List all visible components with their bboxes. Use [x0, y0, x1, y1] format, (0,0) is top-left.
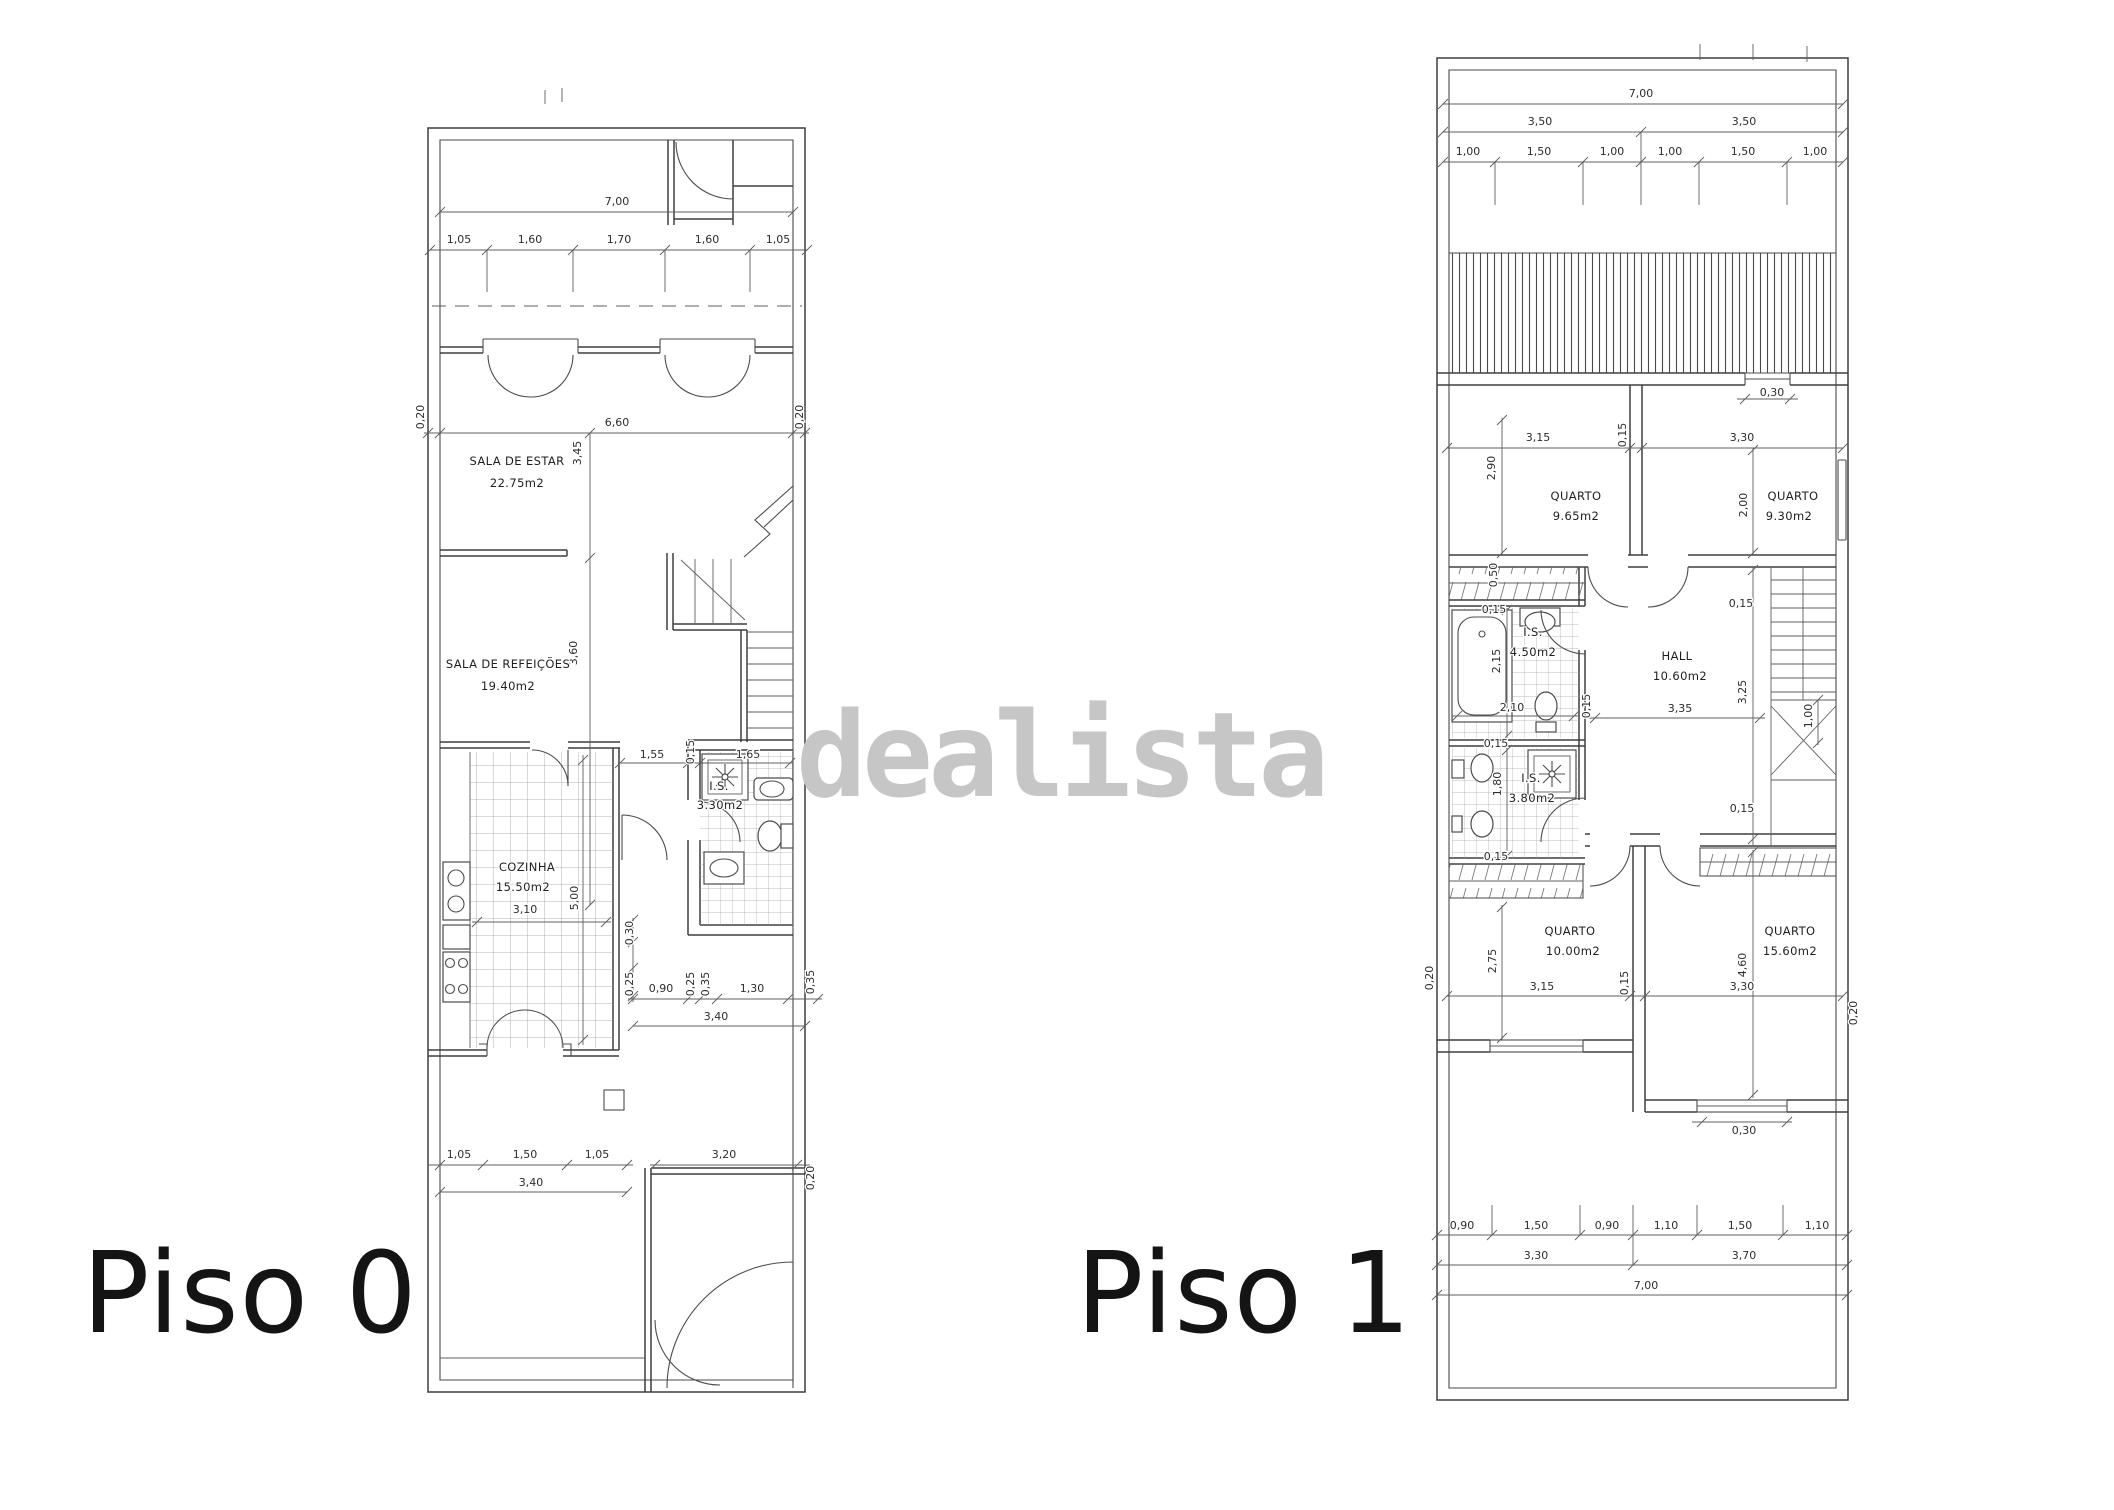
dim-label: 3,25 [1736, 680, 1749, 705]
bidet-icon [1471, 811, 1493, 837]
dim-label: 0,15 [1482, 603, 1507, 616]
room-name-label: QUARTO [1545, 924, 1596, 938]
dim-label: 0,15 [1580, 694, 1593, 719]
dim-label: 1,60 [518, 233, 543, 246]
dim-label: 1,05 [447, 233, 472, 246]
piso0-walls [428, 88, 805, 1392]
dim-label: 0,15 [1729, 597, 1754, 610]
piso0-dimensions [423, 207, 823, 1197]
wardrobe [1449, 567, 1585, 600]
idealista-watermark: dealista [796, 696, 1324, 814]
dim-label: 3,30 [1730, 431, 1755, 444]
dim-label: 1,10 [1805, 1219, 1830, 1232]
dim-label: 0,90 [649, 982, 674, 995]
dim-label: 3,70 [1732, 1249, 1757, 1262]
dim-label: 2,15 [1490, 649, 1503, 674]
door-arc [1588, 567, 1628, 607]
room-name-label: I.S. [1523, 625, 1543, 639]
room-area-label: 22.75m2 [490, 476, 544, 490]
door-arc [1660, 846, 1700, 886]
dim-label: 2,75 [1486, 949, 1499, 974]
dim-label: 7,00 [1634, 1279, 1659, 1292]
room-name-label: HALL [1662, 649, 1693, 663]
floorplan-image: 7,00 1,05 1,60 1,70 1,60 1,05 0,20 0,20 … [0, 0, 2114, 1510]
room-name-label: SALA DE ESTAR [469, 454, 564, 468]
dim-label: 3,30 [1730, 980, 1755, 993]
dim-label: 0,20 [793, 405, 806, 430]
dim-label: 3,50 [1528, 115, 1553, 128]
dim-label: 3,30 [1524, 1249, 1549, 1262]
hall-door-arc [622, 815, 667, 860]
dim-label: 2,00 [1737, 493, 1750, 518]
dim-label: 0,35 [699, 972, 712, 997]
dim-label: 1,50 [513, 1148, 538, 1161]
window-icon [1745, 373, 1790, 385]
dim-label: 1,80 [1491, 772, 1504, 797]
dim-label: 0,15 [1484, 850, 1509, 863]
room-area-label: 10.00m2 [1546, 944, 1600, 958]
dim-label: 3,15 [1530, 980, 1555, 993]
room-area-label: 4.50m2 [1510, 645, 1557, 659]
door-arc [1648, 567, 1688, 607]
dim-label: 7,00 [605, 195, 630, 208]
dim-label: 3,45 [571, 441, 584, 466]
dim-label: 3,20 [712, 1148, 737, 1161]
dim-label: 2,90 [1485, 456, 1498, 481]
dim-label: 0,15 [1484, 737, 1509, 750]
dim-label: 1,00 [1600, 145, 1625, 158]
toilet-icon [758, 821, 782, 851]
dim-label: 1,50 [1527, 145, 1552, 158]
dim-label: 3,15 [1526, 431, 1551, 444]
dim-label: 0,15 [1730, 802, 1755, 815]
dim-label: 0,30 [1760, 386, 1785, 399]
dim-label: 1,50 [1728, 1219, 1753, 1232]
piso1-title: Piso 1 [1076, 1238, 1412, 1350]
dim-label: 1,50 [1731, 145, 1756, 158]
dim-label: 1,00 [1456, 145, 1481, 158]
dim-label: 1,65 [736, 748, 761, 761]
dim-label: 3,35 [1668, 702, 1693, 715]
dim-label: 1,00 [1802, 704, 1815, 729]
room-area-label: 15.50m2 [496, 880, 550, 894]
room-area-label: 10.60m2 [1653, 669, 1707, 683]
dim-label: 1,00 [1803, 145, 1828, 158]
window-icon [1838, 460, 1846, 540]
dim-label: 0,20 [1423, 966, 1436, 991]
dim-label: 1,00 [1658, 145, 1683, 158]
toilet-icon [1471, 754, 1493, 782]
room-area-label: 9.65m2 [1553, 509, 1600, 523]
dim-label: 0,20 [804, 1166, 817, 1191]
dim-label: 0,35 [804, 970, 817, 995]
dim-label: 2,10 [1500, 701, 1525, 714]
dim-label: 0,20 [414, 405, 427, 430]
room-name-label: I.S. [709, 779, 729, 793]
dim-label: 0,25 [623, 972, 636, 997]
room-name-label: SALA DE REFEIÇÕES [446, 656, 570, 671]
dim-label: 1,05 [766, 233, 791, 246]
piso1-plan: 7,00 3,50 3,50 1,00 1,50 1,00 1,00 1,50 … [1423, 44, 1860, 1400]
piso0-plan: 7,00 1,05 1,60 1,70 1,60 1,05 0,20 0,20 … [414, 88, 823, 1392]
dim-label: 3,50 [1732, 115, 1757, 128]
dim-label: 0,15 [684, 740, 697, 765]
dim-label: 6,60 [605, 416, 630, 429]
room-name-label: I.S. [1521, 771, 1541, 785]
dim-label: 1,50 [1524, 1219, 1549, 1232]
piso1-doors [1588, 567, 1700, 886]
dim-label: 1,05 [585, 1148, 610, 1161]
room-name-label: QUARTO [1768, 489, 1819, 503]
dim-label: 4,60 [1736, 953, 1749, 978]
dim-label: 1,55 [640, 748, 665, 761]
dim-label: 7,00 [1629, 87, 1654, 100]
piso0-title: Piso 0 [82, 1238, 418, 1350]
dim-label: 3,40 [519, 1176, 544, 1189]
dim-label: 1,30 [740, 982, 765, 995]
dim-label: 0,15 [1618, 971, 1631, 996]
dim-label: 1,70 [607, 233, 632, 246]
door-arc [1590, 846, 1630, 886]
dim-label: 1,05 [447, 1148, 472, 1161]
dim-label: 3,10 [513, 903, 538, 916]
piso0-stairs [667, 553, 793, 742]
dim-label: 0,90 [1595, 1219, 1620, 1232]
room-area-label: 19.40m2 [481, 679, 535, 693]
kitchen-sink-icon [443, 862, 470, 920]
garden-door-arc [655, 1262, 793, 1388]
dim-label: 5,00 [568, 886, 581, 911]
dim-label: 0,15 [1616, 423, 1629, 448]
room-name-label: QUARTO [1765, 924, 1816, 938]
dim-label: 1,10 [1654, 1219, 1679, 1232]
piso0-back-doors [655, 1262, 793, 1388]
dim-label: 3,40 [704, 1010, 729, 1023]
dim-label: 0,90 [1450, 1219, 1475, 1232]
piso0-bathroom [622, 752, 793, 925]
room-area-label: 9.30m2 [1766, 509, 1813, 523]
room-area-label: 3.80m2 [1509, 791, 1556, 805]
terrace-hatch [1449, 253, 1836, 373]
room-area-label: 15.60m2 [1763, 944, 1817, 958]
dim-label: 1,60 [695, 233, 720, 246]
room-area-label: 3.30m2 [697, 798, 744, 812]
dim-label: 0,30 [1732, 1124, 1757, 1137]
dim-label: 0,50 [1487, 563, 1500, 588]
dim-label: 0,30 [623, 921, 636, 946]
piso1-bathroom1 [1452, 608, 1585, 738]
room-name-label: QUARTO [1551, 489, 1602, 503]
kitchen-tiles [470, 752, 613, 1048]
room-name-label: COZINHA [499, 860, 555, 874]
dim-label: 0,20 [1847, 1001, 1860, 1026]
dim-label: 0,25 [684, 972, 697, 997]
